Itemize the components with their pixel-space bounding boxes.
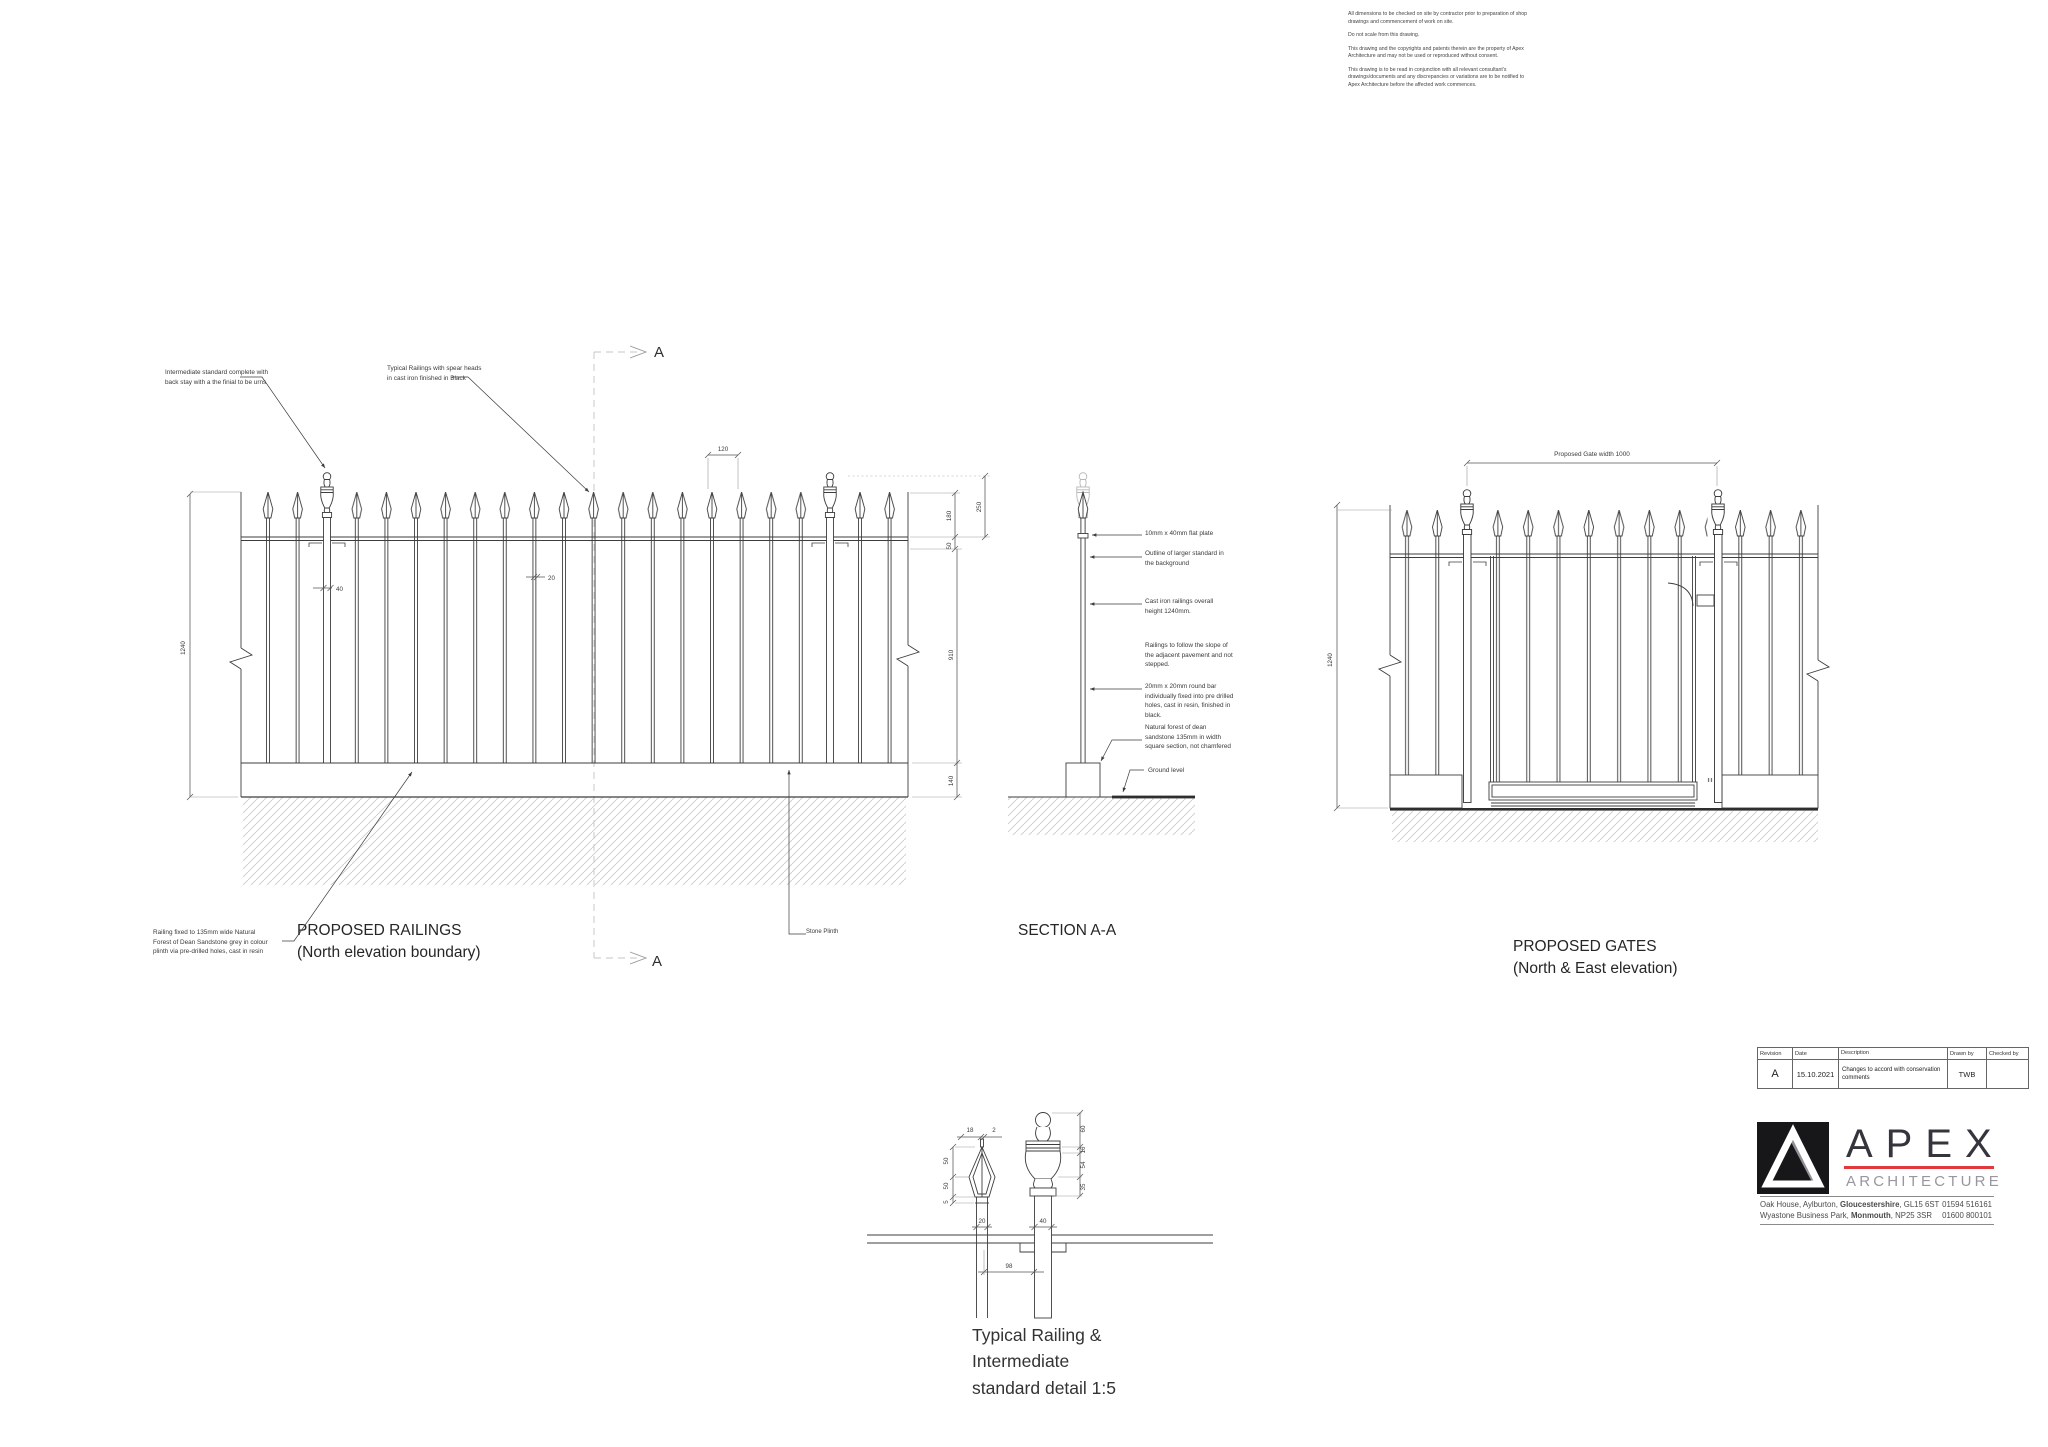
urn-finial-detail	[1020, 1113, 1066, 1319]
dim-bar-width: 20	[548, 575, 555, 582]
dim-urn-body: 54	[1080, 1161, 1087, 1168]
section-note-height: Cast iron railings overall height 1240mm…	[1145, 597, 1229, 616]
address-line-1: Oak House, Aylburton, Gloucestershire, G…	[1760, 1200, 1992, 1211]
detail-dimensions	[950, 1110, 1083, 1275]
dim-spear-collar: 5	[943, 1200, 950, 1204]
spear-head-detail	[969, 1139, 995, 1318]
stone-plinth-section	[1066, 763, 1100, 797]
dim-gate-height: 1240	[1327, 653, 1334, 667]
col-checked-by: Checked by	[1987, 1048, 2029, 1060]
address-line-2: Wyastone Business Park, Monmouth, NP25 3…	[1760, 1211, 1992, 1222]
apex-logo-icon	[1757, 1122, 1829, 1194]
col-description: Description	[1839, 1048, 1948, 1060]
gate-latch-keep	[1697, 595, 1714, 606]
revision-letter: A	[1758, 1060, 1793, 1089]
col-revision: Revision	[1758, 1048, 1793, 1060]
dim-standard-width: 40	[336, 586, 343, 593]
ground-hatch	[1392, 811, 1818, 842]
col-drawn-by: Drawn by	[1948, 1048, 1987, 1060]
dim-finial-height: 250	[976, 501, 983, 512]
phone-number: 01600 800101	[1942, 1211, 1992, 1222]
dim-urn-collar: 16	[1080, 1146, 1087, 1153]
general-notes: All dimensions to be checked on site by …	[1348, 11, 1532, 95]
section-title: SECTION A-A	[1018, 920, 1116, 942]
note-paragraph: Do not scale from this drawing.	[1348, 32, 1532, 40]
annotation-typical-railings: Typical Railings with spear heads in cas…	[387, 364, 483, 383]
revision-date: 15.10.2021	[1793, 1060, 1839, 1089]
gates-elevation-drawing: 1240 Proposed Gate width 1000	[1327, 451, 1829, 842]
ground-level-line	[1112, 796, 1195, 799]
drawing-sheet: A A	[0, 0, 2048, 1447]
detail-title-line2: Intermediate	[972, 1348, 1116, 1374]
revision-table-header: Revision Date Description Drawn by Check…	[1758, 1048, 2029, 1060]
divider	[1760, 1196, 1994, 1197]
gates-subtitle: (North & East elevation)	[1513, 958, 1678, 980]
brand-tagline: ARCHITECTURE	[1846, 1174, 2002, 1189]
section-note-flat-plate: 10mm x 40mm flat plate	[1145, 529, 1237, 539]
section-marker-a-bottom: A	[652, 953, 662, 970]
dim-bar-detail: 20	[979, 1218, 986, 1225]
dim-spear-upper: 50	[943, 1157, 950, 1164]
brand-red-rule	[1844, 1166, 1994, 1169]
note-paragraph: All dimensions to be checked on site by …	[1348, 11, 1532, 26]
gate-pickets	[1456, 510, 1725, 782]
dim-spear-tip: 2	[992, 1127, 996, 1134]
dim-bar-below-rail: 910	[948, 649, 955, 660]
section-note-outline: Outline of larger standard in the backgr…	[1145, 549, 1233, 568]
section-leader-lines	[1090, 535, 1144, 792]
revision-description: Changes to accord with conservation comm…	[1839, 1060, 1948, 1089]
dim-picket-spacing: 120	[718, 446, 729, 453]
section-note-ground-level: Ground level	[1148, 766, 1228, 776]
revision-drawn-by: TWB	[1948, 1060, 1987, 1089]
plinth-block-left	[1390, 775, 1462, 808]
divider	[1760, 1224, 1994, 1225]
dim-gate-width: Proposed Gate width 1000	[1554, 451, 1630, 458]
flat-plate-section	[1078, 534, 1088, 539]
gates-title: PROPOSED GATES	[1513, 936, 1657, 958]
detail-title-line3: standard detail 1:5	[972, 1375, 1116, 1401]
dim-overall-height: 1240	[180, 641, 187, 655]
detail-title: Typical Railing & Intermediate standard …	[972, 1322, 1116, 1401]
railings-subtitle: (North elevation boundary)	[297, 942, 481, 964]
ground-level-line	[1390, 808, 1818, 811]
address-text: Wyastone Business Park, Monmouth, NP25 3…	[1760, 1211, 1932, 1222]
dim-rail-offset: 50	[946, 542, 953, 549]
dim-spear-lower: 50	[943, 1182, 950, 1189]
railings-elevation-drawing: 1240 120 40 20 180 250 50 910 140	[180, 377, 990, 941]
dim-spacing-detail: 98	[1006, 1263, 1013, 1270]
drawing-linework: A A	[0, 0, 2048, 1447]
railings-title: PROPOSED RAILINGS	[297, 920, 462, 942]
revision-checked-by	[1987, 1060, 2029, 1089]
phone-number: 01594 516161	[1942, 1200, 1992, 1211]
address-text: Oak House, Aylburton, Gloucestershire, G…	[1760, 1200, 1939, 1211]
annotation-stone-plinth: Stone Plinth	[806, 929, 838, 935]
dim-spear-width: 18	[967, 1127, 974, 1134]
annotation-railing-fixing: Railing fixed to 135mm wide Natural Fore…	[153, 928, 271, 957]
section-note-sandstone: Natural forest of dean sandstone 135mm i…	[1145, 723, 1237, 752]
dim-plinth-height: 140	[948, 775, 955, 786]
col-date: Date	[1793, 1048, 1839, 1060]
revision-table: Revision Date Description Drawn by Check…	[1757, 1047, 2029, 1089]
revision-row: A 15.10.2021 Changes to accord with cons…	[1758, 1060, 2029, 1089]
section-marker-a-top: A	[654, 344, 664, 361]
dim-spear-height: 180	[946, 510, 953, 521]
plinth-block-right	[1722, 775, 1818, 808]
railing-pickets	[253, 492, 906, 763]
brand-name: APEX	[1846, 1124, 2005, 1164]
dim-urn-top: 60	[1080, 1125, 1087, 1132]
note-paragraph: This drawing is to be read in conjunctio…	[1348, 67, 1532, 90]
annotation-intermediate-standard: Intermediate standard complete with back…	[165, 368, 277, 387]
note-paragraph: This drawing and the copyrights and pate…	[1348, 46, 1532, 61]
detail-title-line1: Typical Railing &	[972, 1322, 1116, 1348]
dim-standard-detail: 40	[1040, 1218, 1047, 1225]
section-note-slope: Railings to follow the slope of the adja…	[1145, 641, 1237, 670]
railing-detail-drawing: 18 2 50 50 5 20 40 98 60 16 54 35	[867, 1110, 1213, 1318]
section-note-round-bar: 20mm x 20mm round bar individually fixed…	[1145, 682, 1237, 720]
dim-urn-base: 35	[1080, 1183, 1087, 1190]
